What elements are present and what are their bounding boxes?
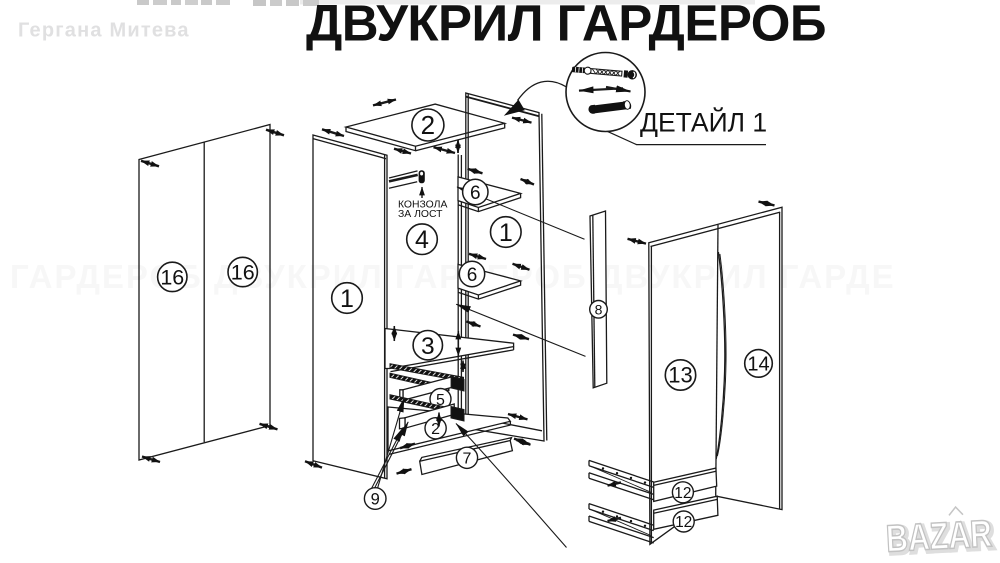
- svg-text:ДВУКРИЛ ГАРДЕРОБ: ДВУКРИЛ ГАРДЕРОБ: [306, 0, 826, 52]
- svg-text:9: 9: [371, 491, 380, 509]
- svg-text:4: 4: [415, 226, 429, 254]
- svg-text:3: 3: [421, 333, 435, 360]
- svg-text:Гергана Митева: Гергана Митева: [18, 20, 190, 42]
- svg-text:2: 2: [421, 110, 435, 140]
- svg-text:16: 16: [160, 265, 184, 289]
- svg-text:1: 1: [340, 285, 354, 313]
- svg-text:ГАРДЕРОБ ДВУКРИЛ ГАРДЕРОБ ДВУК: ГАРДЕРОБ ДВУКРИЛ ГАРДЕРОБ ДВУКРИЛ ГАРДЕ: [10, 258, 896, 295]
- svg-text:BAZAR: BAZAR: [885, 513, 993, 560]
- svg-text:14: 14: [747, 353, 769, 375]
- svg-text:12: 12: [675, 514, 692, 531]
- svg-text:13: 13: [668, 363, 692, 388]
- svg-text:6: 6: [470, 183, 481, 204]
- svg-text:1: 1: [499, 219, 513, 247]
- svg-text:8: 8: [595, 301, 603, 317]
- svg-text:6: 6: [467, 265, 478, 286]
- svg-text:16: 16: [231, 261, 255, 285]
- svg-text:ЗА ЛОСТ: ЗА ЛОСТ: [398, 209, 443, 220]
- svg-text:ДЕТАЙЛ 1: ДЕТАЙЛ 1: [640, 108, 767, 138]
- svg-text:12: 12: [674, 485, 691, 502]
- svg-text:7: 7: [463, 451, 472, 468]
